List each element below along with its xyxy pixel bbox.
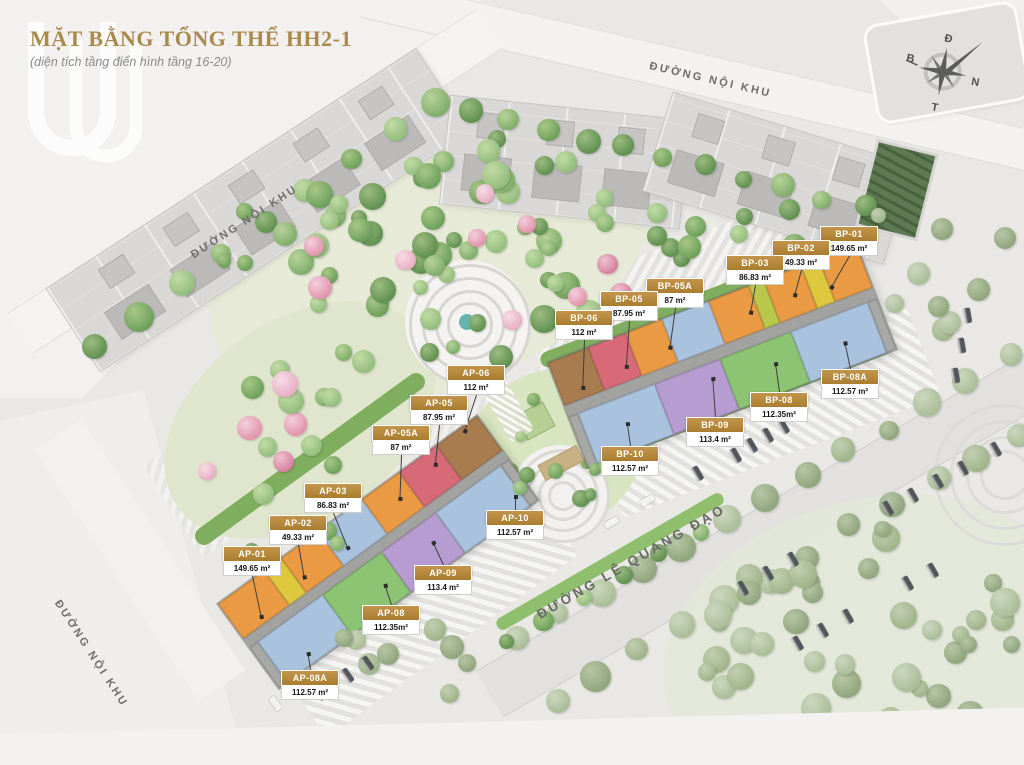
tree bbox=[695, 154, 716, 175]
tree bbox=[424, 618, 446, 640]
block-label-ap-08: AP-08112.35m² bbox=[362, 605, 420, 635]
title-block: MẶT BẰNG TỔNG THỂ HH2-1 (diện tích tầng … bbox=[30, 26, 352, 69]
tree bbox=[82, 334, 107, 359]
tree bbox=[541, 241, 556, 256]
plan-title: MẶT BẰNG TỔNG THỂ HH2-1 bbox=[30, 26, 352, 52]
tree bbox=[497, 109, 518, 130]
tree bbox=[653, 148, 672, 167]
tree bbox=[359, 183, 386, 210]
block-code: AP-08A bbox=[281, 670, 339, 686]
tree bbox=[727, 663, 754, 690]
tree bbox=[555, 151, 577, 173]
car bbox=[963, 308, 972, 324]
tree bbox=[253, 483, 275, 505]
block-area: 87 m² bbox=[372, 441, 430, 455]
tree bbox=[596, 214, 614, 232]
tree bbox=[459, 98, 484, 123]
tree bbox=[440, 684, 459, 703]
tree bbox=[518, 215, 535, 232]
leader-line bbox=[515, 497, 516, 510]
tree bbox=[612, 134, 634, 156]
tree bbox=[440, 635, 464, 659]
tree bbox=[468, 229, 486, 247]
tree bbox=[1000, 343, 1022, 365]
block-code: BP-10 bbox=[601, 446, 659, 462]
tree bbox=[928, 296, 948, 316]
tree bbox=[535, 156, 554, 175]
block-code: AP-10 bbox=[486, 510, 544, 526]
tree bbox=[469, 314, 487, 332]
block-label-ap-05: AP-0587.95 m² bbox=[410, 395, 468, 425]
block-area: 86.83 m² bbox=[726, 271, 784, 285]
tree bbox=[647, 226, 667, 246]
tree bbox=[804, 651, 825, 672]
tree bbox=[907, 262, 930, 285]
roof-detail bbox=[227, 169, 265, 205]
block-area: 86.83 m² bbox=[304, 499, 362, 513]
tree bbox=[485, 230, 507, 252]
block-label-bp-08: BP-08112.35m² bbox=[750, 392, 808, 422]
block-area: 112 m² bbox=[447, 381, 505, 395]
tree bbox=[458, 654, 476, 672]
block-area: 149.65 m² bbox=[223, 562, 281, 576]
block-code: AP-03 bbox=[304, 483, 362, 499]
tree bbox=[736, 208, 753, 225]
block-area: 113.4 m² bbox=[686, 433, 744, 447]
block-code: BP-06 bbox=[555, 310, 613, 326]
tree bbox=[730, 225, 748, 243]
tree bbox=[272, 371, 297, 396]
block-code: BP-09 bbox=[686, 417, 744, 433]
tree bbox=[994, 227, 1016, 249]
tree bbox=[306, 181, 333, 208]
tree bbox=[1007, 424, 1024, 447]
tree bbox=[273, 451, 294, 472]
block-code: AP-08 bbox=[362, 605, 420, 621]
tree bbox=[779, 199, 800, 220]
compass-letter-right: N bbox=[970, 76, 980, 89]
roof-detail bbox=[97, 254, 135, 290]
tree bbox=[835, 654, 855, 674]
tree bbox=[377, 643, 399, 665]
block-code: BP-08A bbox=[821, 369, 879, 385]
roof-detail bbox=[761, 135, 795, 167]
roof-detail bbox=[691, 113, 725, 145]
tree bbox=[597, 254, 618, 275]
block-area: 49.33 m² bbox=[269, 531, 327, 545]
block-label-ap-01: AP-01149.65 m² bbox=[223, 546, 281, 576]
block-label-ap-09: AP-09113.4 m² bbox=[414, 565, 472, 595]
tree bbox=[258, 437, 278, 457]
block-code: BP-02 bbox=[772, 240, 830, 256]
block-label-ap-06: AP-06112 m² bbox=[447, 365, 505, 395]
tree bbox=[548, 463, 563, 478]
tree bbox=[384, 117, 408, 141]
tree bbox=[568, 287, 587, 306]
tree bbox=[477, 139, 501, 163]
tree bbox=[424, 255, 445, 276]
block-label-ap-02: AP-0249.33 m² bbox=[269, 515, 327, 545]
block-area: 112.35m² bbox=[750, 408, 808, 422]
compass-rose: Đ N T B bbox=[885, 10, 1005, 130]
tree bbox=[513, 481, 527, 495]
block-area: 87.95 m² bbox=[410, 411, 468, 425]
tree bbox=[913, 388, 941, 416]
block-code: AP-01 bbox=[223, 546, 281, 562]
tree bbox=[580, 661, 611, 692]
tree bbox=[576, 129, 601, 154]
block-label-ap-08a: AP-08A112.57 m² bbox=[281, 670, 339, 700]
tree bbox=[685, 216, 706, 237]
tree bbox=[324, 456, 342, 474]
tree bbox=[476, 184, 494, 202]
tree bbox=[308, 276, 332, 300]
tree bbox=[892, 663, 921, 692]
block-code: AP-05 bbox=[410, 395, 468, 411]
tree bbox=[416, 163, 442, 189]
tree bbox=[879, 421, 899, 441]
car bbox=[603, 516, 619, 530]
tree bbox=[395, 250, 415, 270]
tree bbox=[273, 222, 297, 246]
block-label-bp-09: BP-09113.4 m² bbox=[686, 417, 744, 447]
tree bbox=[446, 340, 460, 354]
roof-detail bbox=[292, 127, 330, 163]
block-area: 112.57 m² bbox=[601, 462, 659, 476]
tree bbox=[341, 149, 361, 169]
block-code: BP-08 bbox=[750, 392, 808, 408]
tree bbox=[124, 302, 154, 332]
tree bbox=[812, 191, 831, 210]
tree bbox=[169, 270, 195, 296]
tree bbox=[335, 629, 352, 646]
tree bbox=[546, 689, 570, 713]
block-area: 112.57 m² bbox=[486, 526, 544, 540]
tree bbox=[502, 310, 522, 330]
block-label-bp-08a: BP-08A112.57 m² bbox=[821, 369, 879, 399]
block-label-ap-03: AP-0386.83 m² bbox=[304, 483, 362, 513]
block-area: 112 m² bbox=[555, 326, 613, 340]
block-code: BP-05 bbox=[600, 291, 658, 307]
tree bbox=[420, 308, 442, 330]
tree bbox=[625, 638, 648, 661]
plan-subtitle: (diện tích tầng điển hình tầng 16-20) bbox=[30, 55, 352, 69]
tree bbox=[217, 253, 232, 268]
tree bbox=[678, 235, 701, 258]
tree bbox=[335, 344, 352, 361]
roof-detail bbox=[162, 211, 200, 247]
block-label-bp-06: BP-06112 m² bbox=[555, 310, 613, 340]
roof-detail bbox=[667, 149, 725, 197]
roof-detail bbox=[357, 85, 395, 121]
car bbox=[957, 338, 966, 354]
tree bbox=[837, 513, 860, 536]
tree bbox=[515, 431, 526, 442]
block-label-ap-10: AP-10112.57 m² bbox=[486, 510, 544, 540]
block-label-ap-05a: AP-05A87 m² bbox=[372, 425, 430, 455]
tree bbox=[931, 218, 952, 239]
tree bbox=[831, 437, 856, 462]
block-code: AP-05A bbox=[372, 425, 430, 441]
tree bbox=[237, 416, 261, 440]
tree bbox=[530, 305, 558, 333]
block-label-bp-03: BP-0386.83 m² bbox=[726, 255, 784, 285]
block-code: AP-09 bbox=[414, 565, 472, 581]
block-area: 113.4 m² bbox=[414, 581, 472, 595]
tree bbox=[704, 601, 732, 629]
block-code: BP-03 bbox=[726, 255, 784, 271]
tree bbox=[527, 393, 540, 406]
compass-letter-top: Đ bbox=[943, 33, 953, 46]
tree bbox=[537, 119, 559, 141]
tree bbox=[330, 195, 348, 213]
block-code: AP-02 bbox=[269, 515, 327, 531]
roof-detail bbox=[832, 156, 866, 188]
tree bbox=[304, 236, 324, 256]
tree bbox=[750, 632, 774, 656]
block-label-bp-10: BP-10112.57 m² bbox=[601, 446, 659, 476]
block-area: 112.57 m² bbox=[821, 385, 879, 399]
block-area: 112.57 m² bbox=[281, 686, 339, 700]
block-area: 112.35m² bbox=[362, 621, 420, 635]
tree bbox=[966, 610, 986, 630]
tree bbox=[751, 484, 779, 512]
tree bbox=[284, 412, 308, 436]
block-code: AP-06 bbox=[447, 365, 505, 381]
tree bbox=[926, 684, 950, 708]
site-plan-canvas: Đ N T B ĐƯỜNG NỘI KHU ĐƯỜNG NỘI KHU ĐƯỜN… bbox=[0, 0, 1024, 765]
tree bbox=[967, 278, 990, 301]
tree bbox=[413, 280, 428, 295]
tree bbox=[352, 350, 375, 373]
tree bbox=[241, 376, 264, 399]
compass-letter-bottom: T bbox=[930, 101, 939, 114]
